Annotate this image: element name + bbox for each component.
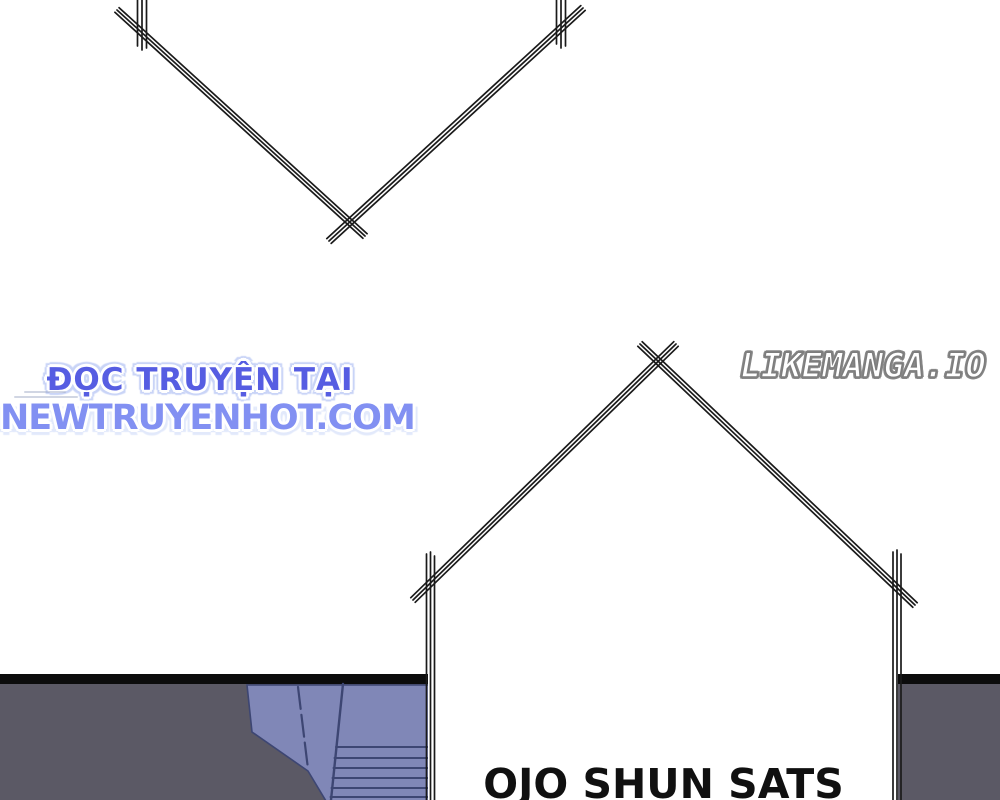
manga-page: ĐỌC TRUYỆN TẠI NEWTRUYENHOT.COM LIKEMANG… (0, 0, 1000, 800)
tiny-watermark-smudge (24, 391, 66, 393)
dialogue-text: OJO SHUN SATS (430, 760, 897, 800)
tiny-watermark-smudge (14, 396, 78, 398)
reader-watermark-line2: NEWTRUYENHOT.COM (0, 400, 400, 437)
site-watermark: LIKEMANGA.IO (736, 346, 1000, 386)
top-chevron-outline (115, 0, 585, 243)
house-bubble-interior (428, 359, 898, 800)
reader-watermark: ĐỌC TRUYỆN TẠI NEWTRUYENHOT.COM (0, 364, 400, 436)
